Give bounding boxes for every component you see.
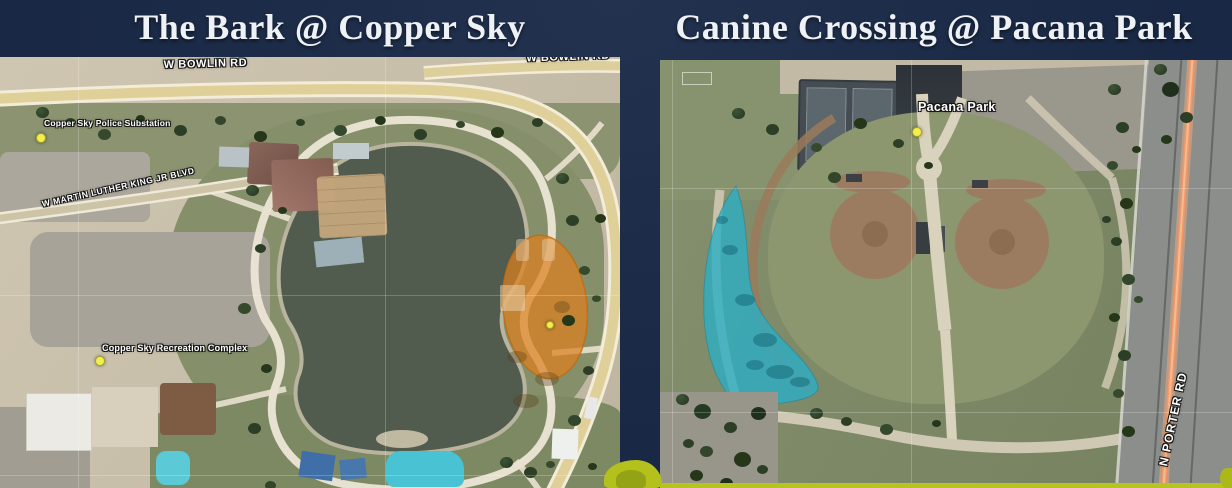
shade-structure-2 <box>339 458 367 481</box>
tree-column-lakeshore <box>246 185 259 196</box>
parking-lot-south <box>660 392 778 484</box>
central-walkway <box>930 178 945 330</box>
police-substation-label: Copper Sky Police Substation <box>44 118 171 128</box>
dugout-structure <box>916 222 930 254</box>
recreation-complex-marker-dot <box>95 356 105 366</box>
bottom-strip <box>660 483 1232 488</box>
gridline <box>0 295 620 296</box>
copper-sky-aerial-map: W BOWLIN RD W BOWLIN RD Copper Sky Polic… <box>0 57 620 488</box>
trees-northeast <box>1154 64 1167 75</box>
page-title-left: The Bark @ Copper Sky <box>20 2 640 52</box>
trees-southeast <box>500 457 513 468</box>
trees-south <box>810 408 823 419</box>
gridline <box>385 57 386 488</box>
recreation-center-building <box>26 393 92 451</box>
maintenance-building <box>551 429 578 460</box>
presentation-slide: The Bark @ Copper Sky Canine Crossing @ … <box>0 0 1232 488</box>
dirt-yard <box>160 383 216 435</box>
police-substation-marker-dot <box>36 133 46 143</box>
tree-row-north <box>36 107 49 118</box>
recreation-complex-label: Copper Sky Recreation Complex <box>102 343 247 353</box>
bottom-corner-blob <box>1220 468 1232 488</box>
pool-large <box>386 451 464 487</box>
gridline <box>672 60 673 484</box>
pavilion-patio <box>316 173 387 238</box>
page-title-right: Canine Crossing @ Pacana Park <box>648 2 1220 52</box>
pool-small <box>156 451 190 485</box>
bark-dog-park-marker-dot <box>546 321 554 329</box>
small-roof-1 <box>219 146 250 167</box>
gridline <box>660 188 1232 189</box>
trees-northwest <box>732 108 745 119</box>
gridline <box>911 60 912 484</box>
bottom-gap-blob-shade <box>616 470 646 488</box>
shade-structure-1 <box>298 451 335 481</box>
lakeside-roof <box>314 237 364 268</box>
tree-column-east <box>556 173 569 184</box>
gridline <box>660 412 1232 413</box>
pacana-park-aerial-map: Pacana Park N PORTER RD <box>660 60 1232 484</box>
lake-beach <box>376 430 428 448</box>
recreation-annex-building <box>92 387 158 447</box>
pacana-park-marker-dot <box>912 127 922 137</box>
trees-southwest <box>676 394 689 405</box>
pacana-park-label: Pacana Park <box>918 100 996 114</box>
small-roof-2 <box>333 143 369 159</box>
gridline <box>0 475 620 476</box>
tree-column-porter-rd <box>1108 84 1121 95</box>
